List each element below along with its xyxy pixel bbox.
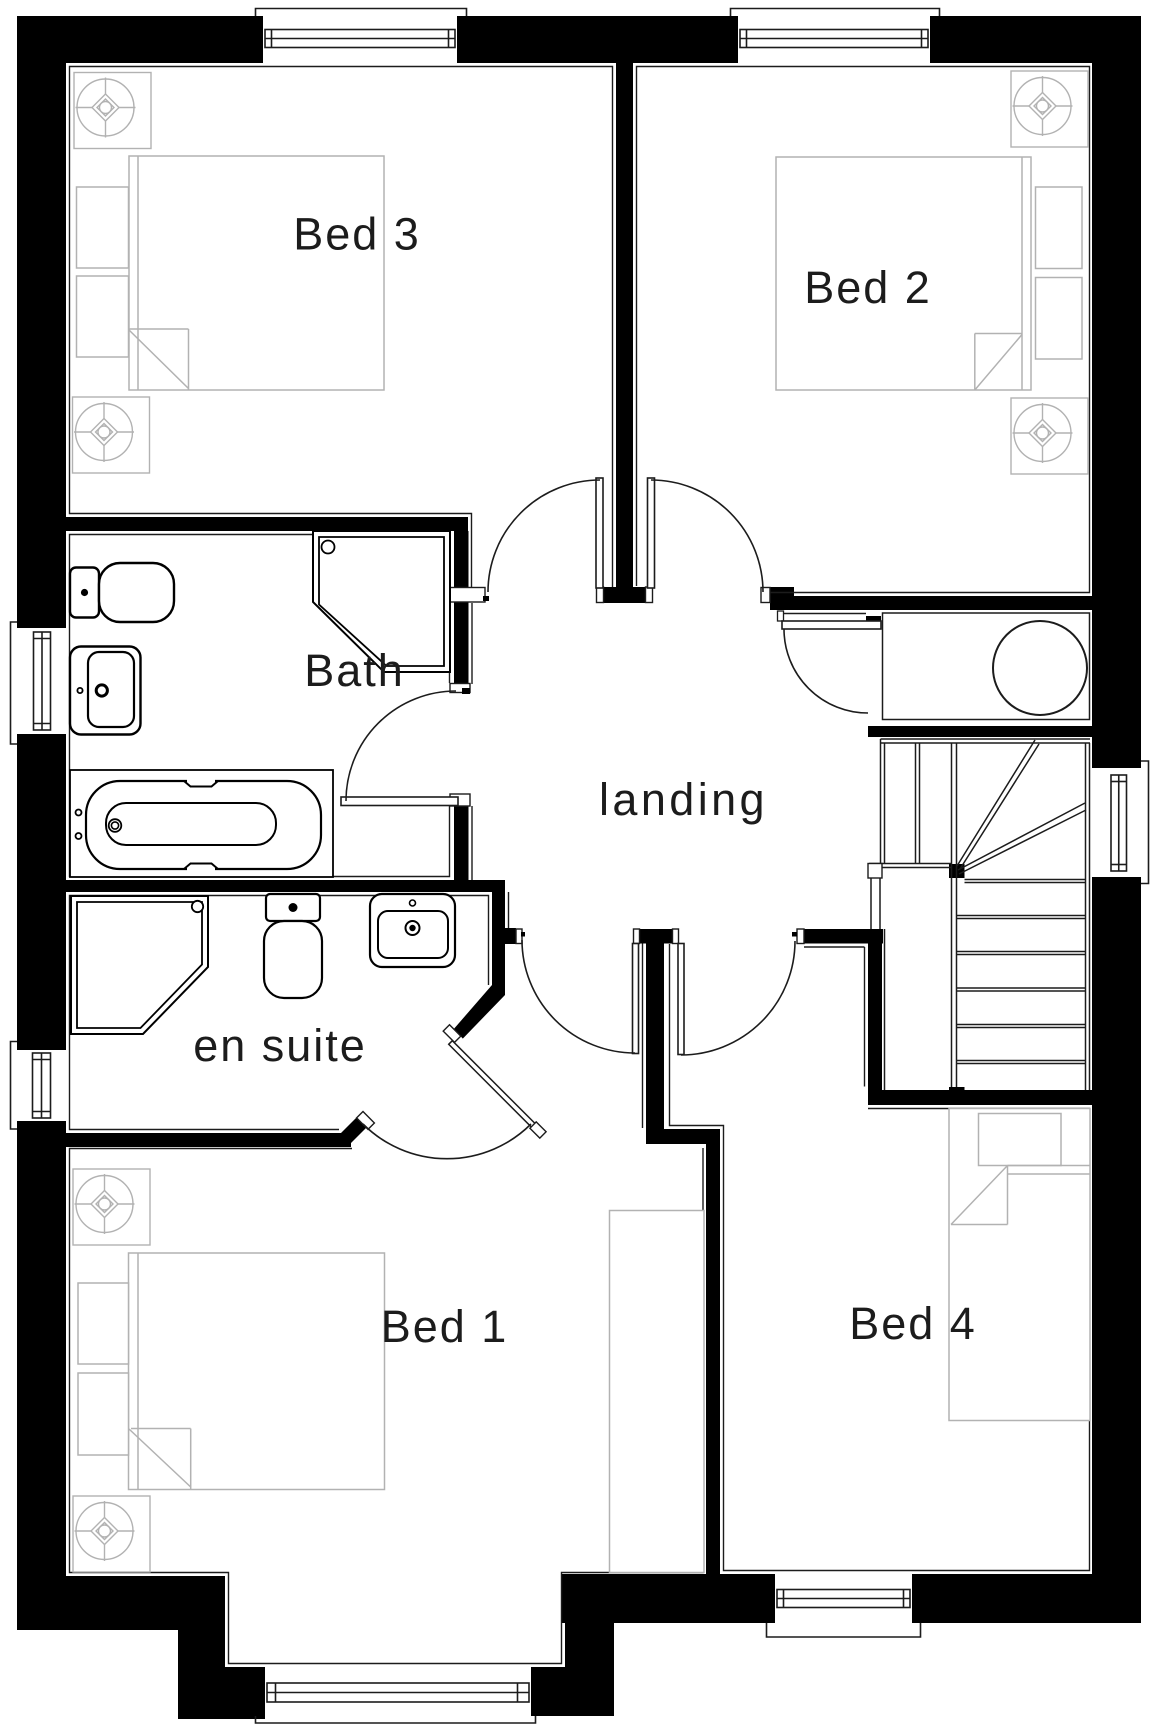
svg-text:landing: landing [599, 774, 768, 825]
svg-text:Bed 2: Bed 2 [804, 262, 932, 313]
svg-text:Bed 3: Bed 3 [293, 209, 421, 260]
svg-text:en suite: en suite [193, 1020, 367, 1071]
svg-text:Bath: Bath [304, 645, 405, 696]
svg-text:Bed 1: Bed 1 [381, 1301, 509, 1352]
svg-text:Bed 4: Bed 4 [849, 1298, 977, 1349]
